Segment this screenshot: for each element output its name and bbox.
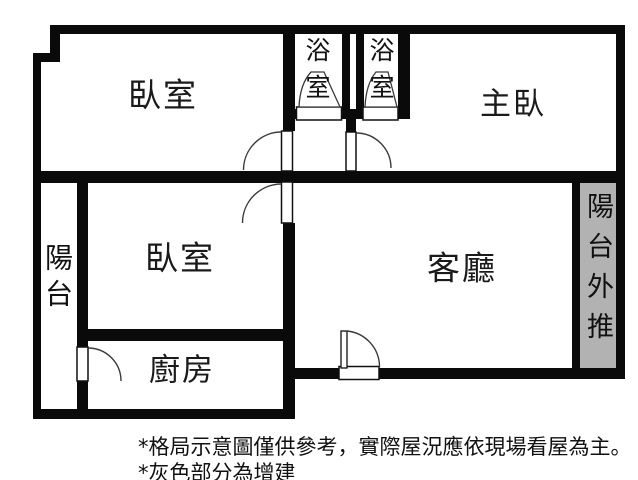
wall-main-horizontal	[33, 171, 625, 183]
room-label-balcony-extension: 陽台外推	[584, 192, 611, 352]
door-swing-icon-entry	[347, 331, 380, 367]
door-swing-icon-master	[356, 133, 391, 168]
wall-extension-left	[572, 183, 580, 368]
room-label-balcony-left: 陽台	[43, 243, 71, 315]
room-label-kitchen: 廚房	[149, 356, 215, 387]
wall-outer-left	[33, 53, 41, 419]
wall-balcony-lower	[77, 381, 88, 419]
wall-outer-bottom-left	[33, 409, 295, 419]
disclaimer-line-2: *灰色部分為增建	[138, 457, 296, 480]
wall-hall-master-stub2	[346, 166, 356, 172]
floorplan: 臥室 浴室 浴室 主臥 陽台 臥室 客廳 陽台外推 廚房 *格局示意圖僅供參考，…	[0, 0, 638, 480]
room-label-master-bedroom: 主臥	[480, 90, 546, 121]
wall-outer-right	[616, 25, 625, 379]
door-leaf-kitchen	[77, 347, 88, 381]
room-label-bedroom-mid: 臥室	[145, 242, 215, 275]
door-leaf-bedroom-top	[282, 131, 293, 171]
door-leaf-entry	[341, 331, 347, 368]
wall-bathroom1-right	[342, 34, 350, 109]
door-swing-icon-kitchen	[88, 348, 121, 381]
wall-bedroom2-kitchen	[77, 329, 295, 341]
room-label-bathroom-2: 浴室	[368, 37, 393, 111]
wall-outer-top	[50, 25, 625, 34]
room-label-bedroom-top: 臥室	[128, 79, 198, 112]
room-label-living-room: 客廳	[427, 252, 497, 285]
wall-bathroom2-master	[398, 34, 410, 117]
wall-bedroom2-living	[283, 223, 295, 419]
room-label-bathroom-1: 浴室	[304, 37, 329, 111]
door-leaf-bedroom-mid	[282, 182, 293, 223]
wall-hall-master-stub	[346, 109, 356, 133]
wall-outer-bottom-right	[283, 368, 625, 379]
wall-balcony-door-stub	[77, 341, 88, 348]
door-swing-icon-bedroom-mid	[243, 184, 282, 223]
door-swing-icon-bedroom-top	[244, 132, 282, 170]
wall-balcony-divider	[77, 171, 88, 341]
wall-bathroom2-left	[356, 34, 364, 109]
